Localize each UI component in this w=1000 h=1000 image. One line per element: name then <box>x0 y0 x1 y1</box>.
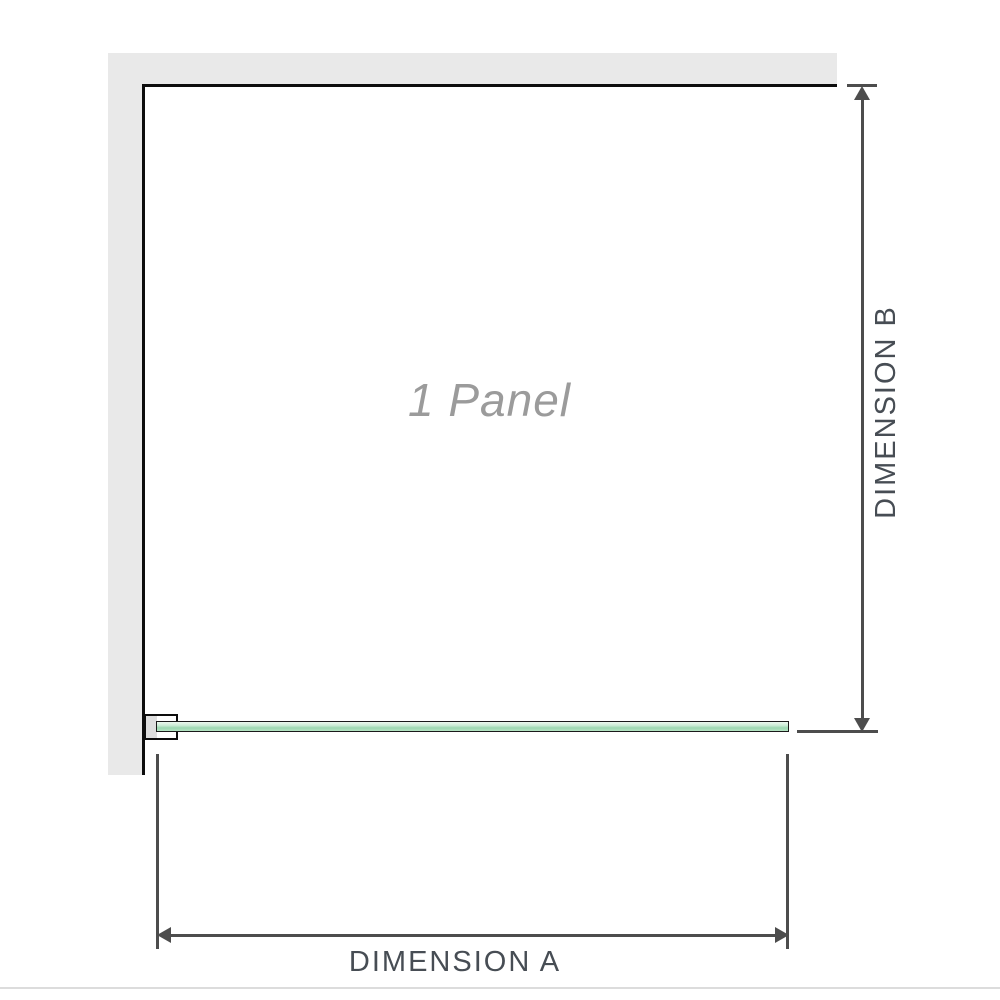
glass-panel <box>156 721 789 732</box>
arrow-up-icon <box>854 86 870 100</box>
dimension-a-label: DIMENSION A <box>305 946 605 979</box>
bottom-divider <box>0 987 1000 989</box>
wall-left <box>108 53 142 775</box>
panel-area: 1 Panel <box>142 85 837 715</box>
dimension-a-extension-right <box>786 754 789 949</box>
wall-top <box>108 53 837 84</box>
panel-count-label: 1 Panel <box>408 373 571 427</box>
arrow-down-icon <box>854 718 870 732</box>
arrow-left-icon <box>157 927 171 943</box>
dimension-a-line <box>171 934 775 937</box>
dimension-b-line <box>861 98 864 720</box>
dimension-diagram: 1 Panel DIMENSION B DIMENSION A <box>0 0 1000 1000</box>
arrow-right-icon <box>775 927 789 943</box>
dimension-a-extension-left <box>156 754 159 949</box>
dimension-b-label: DIMENSION B <box>869 262 903 562</box>
